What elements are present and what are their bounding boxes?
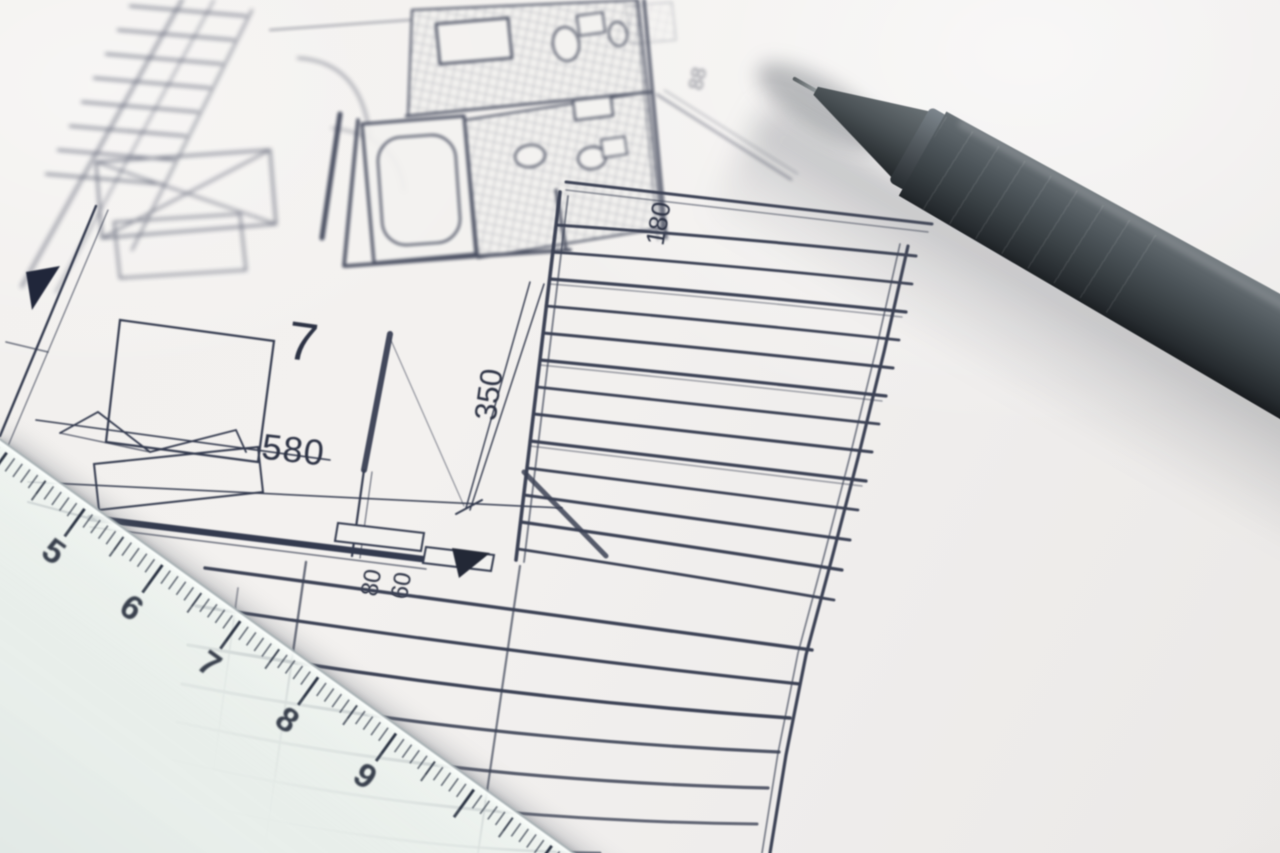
dimension-line: [390, 338, 464, 506]
blanket-zigzag: [60, 430, 236, 452]
deck-plank: [540, 365, 882, 401]
cistern: [577, 12, 606, 35]
deck-edge: [770, 246, 908, 853]
tick-mark: [456, 500, 482, 514]
photo-scene: 88 7 580 350: [0, 0, 1280, 853]
stair-step: [82, 102, 198, 112]
wall: [270, 20, 410, 30]
tick-mark: [6, 342, 48, 352]
dimension-label-350: 350: [468, 366, 510, 422]
stair-step: [70, 126, 186, 136]
stair-rail: [56, 0, 214, 292]
stair-step: [118, 30, 234, 40]
hatch-patch: [626, 2, 676, 44]
door-swing-arc: [298, 58, 370, 138]
stair-step: [130, 6, 246, 16]
cistern: [601, 136, 627, 157]
wall: [524, 472, 606, 556]
deck-plank: [537, 387, 879, 424]
wall: [322, 114, 340, 238]
deck-plank: [540, 360, 886, 396]
stair-landing-cross: [96, 150, 276, 238]
deck-plank: [543, 333, 893, 368]
deck-plank: [521, 522, 842, 570]
bed-footer: [94, 447, 263, 510]
deck-edge: [762, 244, 900, 853]
deck-plank: [530, 446, 862, 486]
sink: [436, 18, 512, 64]
wall: [8, 210, 108, 446]
wall: [364, 334, 390, 470]
wall: [344, 120, 358, 266]
bathroom: [270, 0, 666, 266]
dimension-line: [28, 482, 562, 508]
dimension-label-580: 580: [260, 426, 327, 474]
stair-rail: [22, 0, 182, 286]
dimension-label-180: 180: [640, 199, 677, 247]
stair-step: [94, 78, 210, 88]
blanket-zigzag: [60, 412, 246, 452]
stair-step: [106, 54, 222, 64]
deck-plank: [518, 549, 834, 600]
room-number-label: 7: [283, 310, 321, 374]
dimension-label-88: 88: [685, 66, 711, 92]
